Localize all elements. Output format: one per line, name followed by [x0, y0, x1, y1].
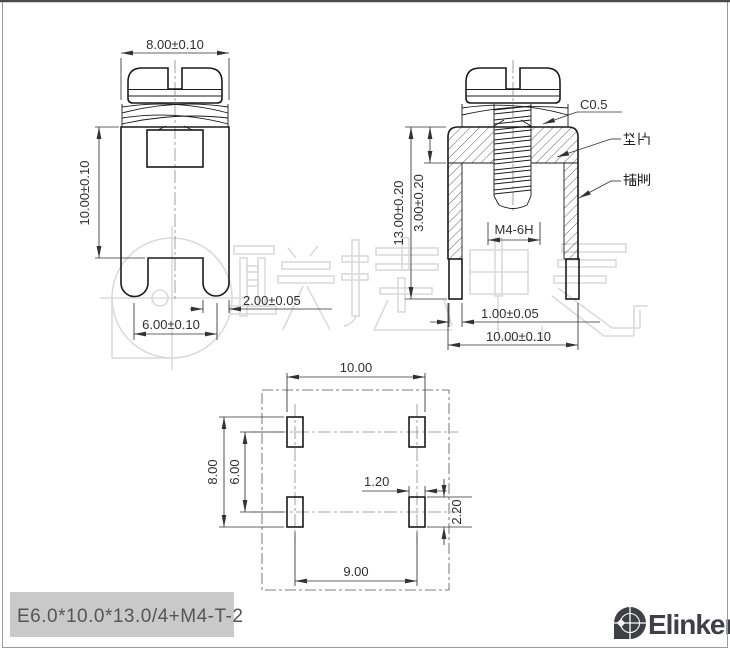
page-border — [0, 1, 730, 648]
bottom-pins — [287, 417, 425, 527]
dim-section-leg-thickness: 1.00±0.05 — [430, 303, 600, 327]
bottom-centerlines — [252, 404, 458, 545]
svg-text:3.00±0.20: 3.00±0.20 — [411, 174, 426, 232]
drawing-canvas: 联捷电气 — [0, 0, 730, 650]
section-plate-hatch-right — [531, 127, 578, 163]
svg-text:M4-6H: M4-6H — [494, 222, 533, 237]
dim-section-washer-height: 3.00±0.20 — [411, 127, 446, 232]
svg-text:9.00: 9.00 — [343, 564, 368, 579]
elinker-logo: Elinker — [612, 605, 730, 641]
title-block: E6.0*10.0*13.0/4+M4-T-2 — [10, 592, 243, 637]
dim-bottom-outer-height: 8.00 — [205, 417, 284, 527]
bottom-view: 10.00 9.00 8.00 6.00 1.20 — [205, 360, 472, 590]
svg-text:13.00±0.20: 13.00±0.20 — [391, 181, 406, 246]
svg-text:1.20: 1.20 — [364, 474, 389, 489]
svg-text:10.00: 10.00 — [340, 360, 373, 375]
watermark-char-lian — [230, 246, 334, 330]
dim-bottom-pitch-x: 9.00 — [295, 532, 417, 586]
part-code-label: E6.0*10.0*13.0/4+M4-T-2 — [17, 606, 243, 627]
section-wall-hatch-left — [448, 163, 462, 259]
svg-text:2.20: 2.20 — [449, 499, 464, 524]
dim-bottom-pin-width: 1.20 — [362, 474, 447, 496]
svg-text:10.00±0.10: 10.00±0.10 — [486, 329, 551, 344]
svg-text:6.00±0.10: 6.00±0.10 — [142, 317, 200, 332]
section-wall-hatch-right — [564, 163, 578, 259]
svg-text:C0.5: C0.5 — [580, 97, 607, 112]
dim-bottom-pitch-y: 6.00 — [227, 432, 284, 512]
elinker-logo-icon — [612, 605, 648, 641]
dim-bottom-outer-width: 10.00 — [287, 360, 425, 412]
engineering-drawing-page: 联捷电气 — [0, 0, 730, 650]
label-pin: 插脚 — [579, 172, 651, 198]
svg-text:8.00: 8.00 — [205, 459, 220, 484]
dim-front-leg-span: 6.00±0.10 — [134, 303, 217, 340]
bottom-body-outline — [262, 390, 449, 590]
svg-text:10.00±0.10: 10.00±0.10 — [77, 161, 92, 226]
watermark-char-jie — [342, 238, 452, 330]
svg-text:2.00±0.05: 2.00±0.05 — [243, 293, 301, 308]
svg-text:8.00±0.10: 8.00±0.10 — [146, 37, 204, 52]
svg-text:1.00±0.05: 1.00±0.05 — [481, 306, 539, 321]
brand-name: Elinker — [648, 609, 730, 640]
svg-text:6.00: 6.00 — [227, 459, 242, 484]
section-plate-hatch-left — [448, 127, 494, 163]
